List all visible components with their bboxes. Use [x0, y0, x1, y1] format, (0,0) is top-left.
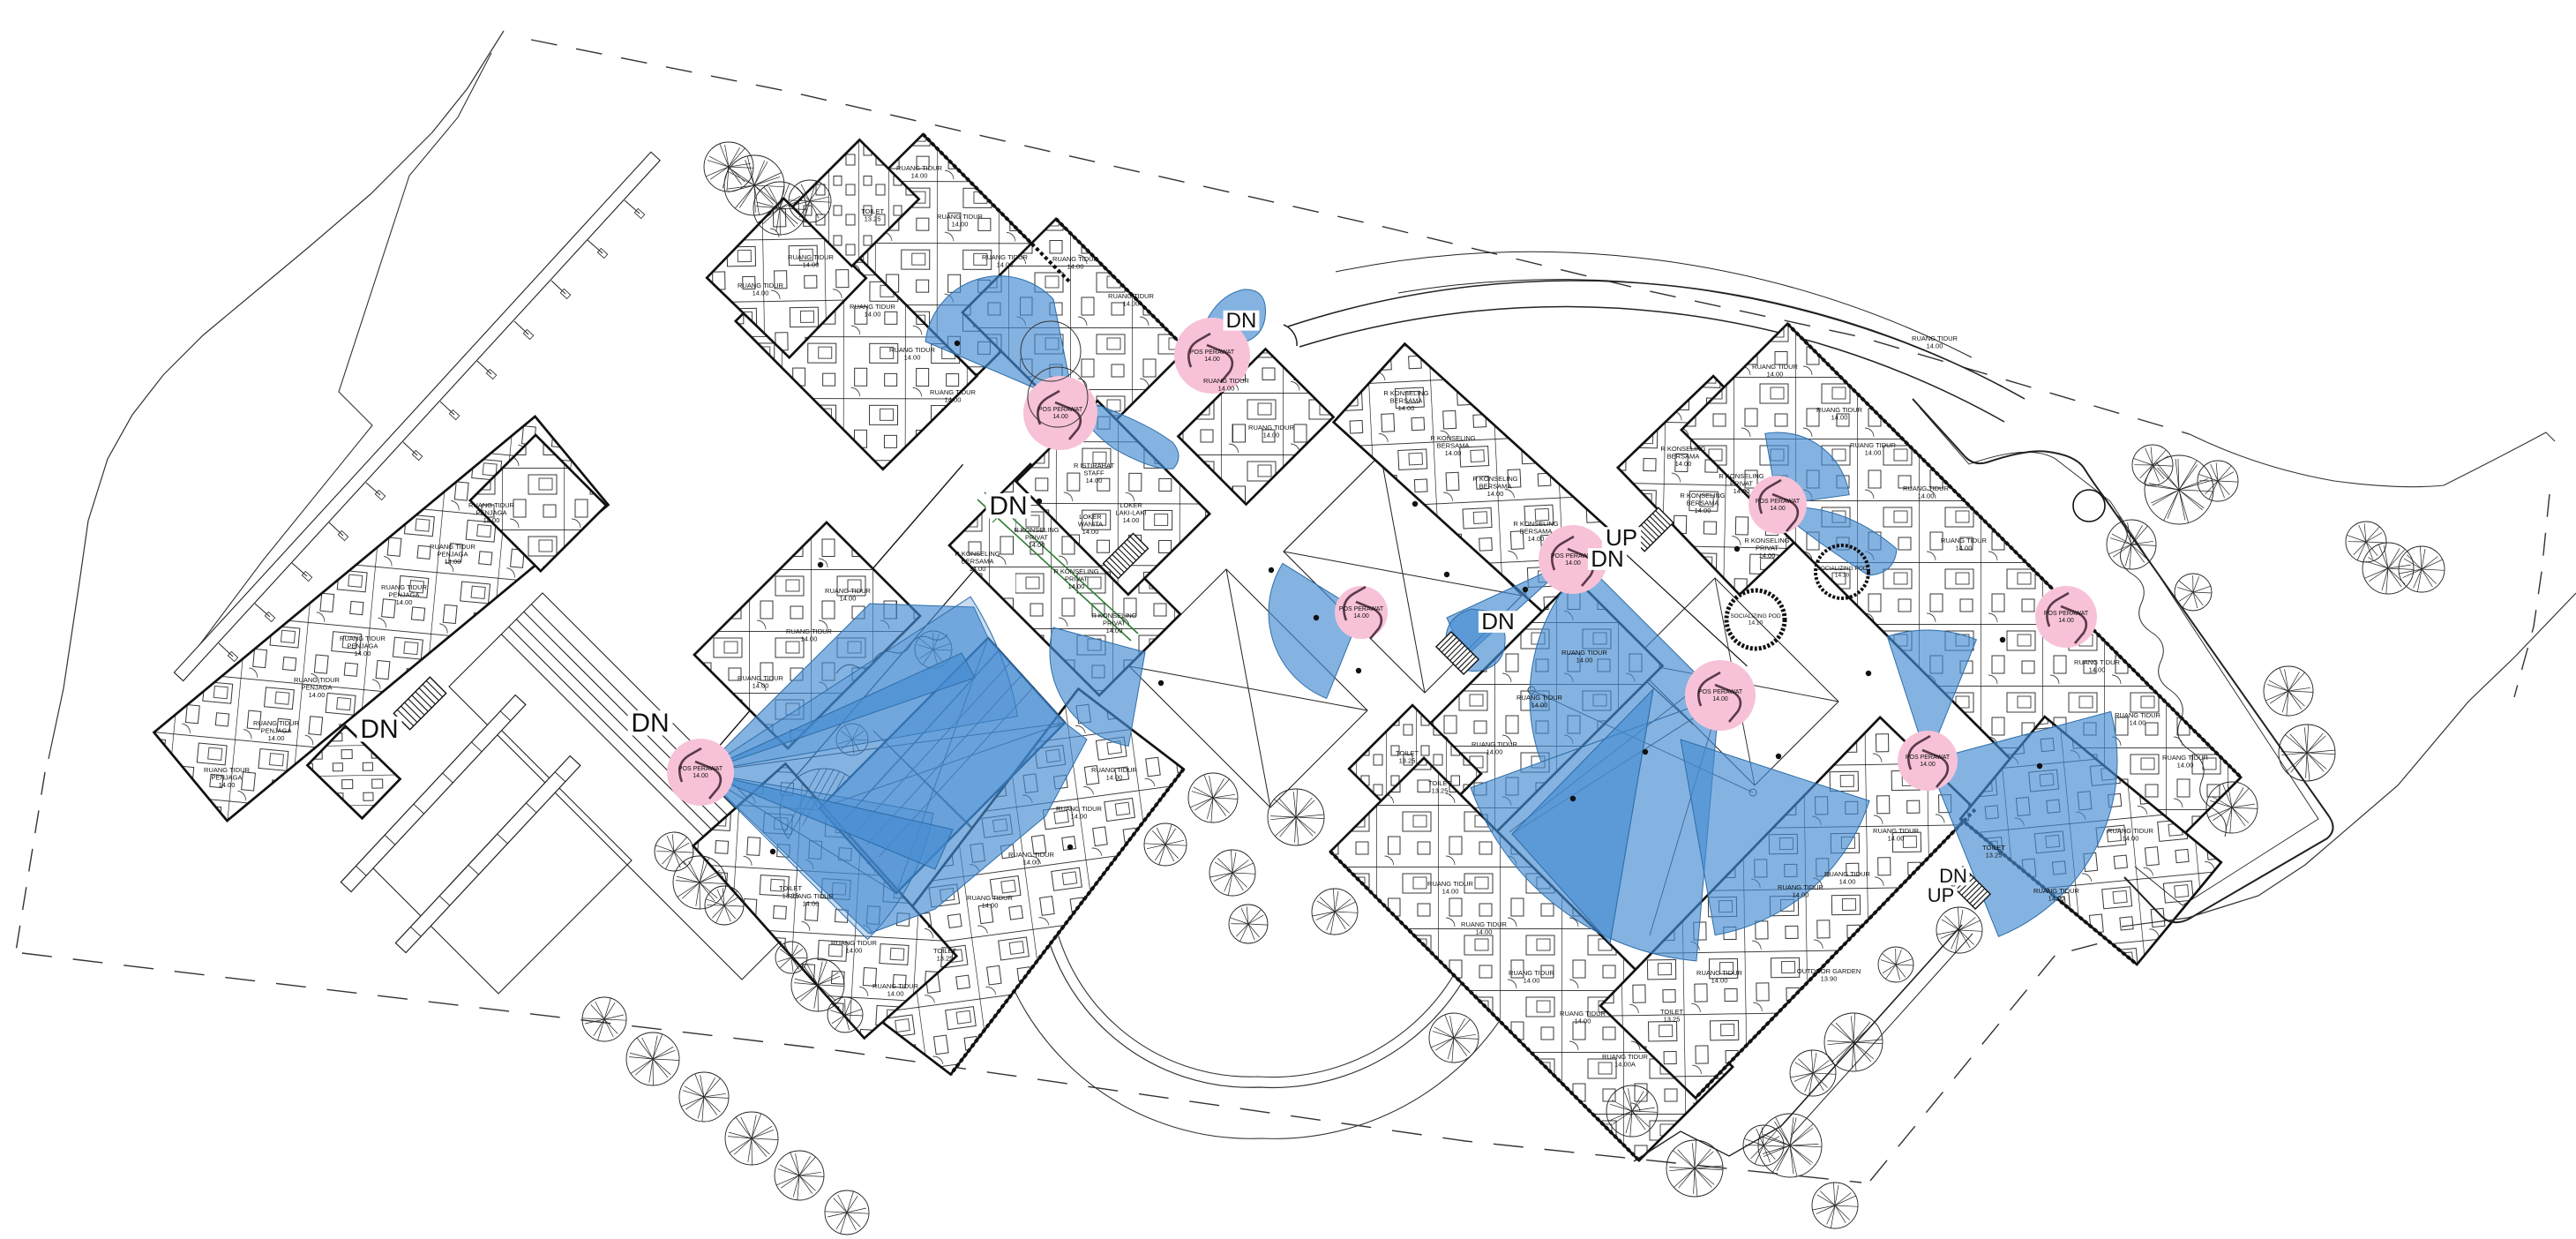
svg-text:POS PERAWAT: POS PERAWAT — [678, 766, 723, 772]
svg-text:14.00: 14.00 — [803, 900, 820, 908]
svg-text:DN: DN — [1481, 608, 1515, 635]
svg-text:14.00: 14.00 — [483, 516, 500, 524]
svg-text:14.00: 14.00 — [693, 773, 708, 779]
svg-text:14.00: 14.00 — [219, 781, 236, 789]
svg-text:14.00: 14.00 — [1888, 835, 1905, 843]
svg-text:14.00: 14.00 — [1956, 544, 1973, 552]
svg-text:POS PERAWAT: POS PERAWAT — [1190, 349, 1235, 356]
svg-text:UP: UP — [1928, 884, 1955, 906]
svg-text:14.00: 14.00 — [904, 354, 921, 362]
svg-text:DN: DN — [989, 492, 1027, 521]
svg-text:SOCIALIZING POD: SOCIALIZING POD — [1730, 613, 1780, 619]
svg-text:POS PERAWAT: POS PERAWAT — [1339, 606, 1384, 612]
svg-text:14.00: 14.00 — [1445, 449, 1462, 457]
svg-text:14.00: 14.00 — [2058, 618, 2074, 624]
svg-text:14.00: 14.00 — [1565, 560, 1581, 567]
svg-text:14.00: 14.00 — [1082, 528, 1099, 536]
svg-text:14.00: 14.00 — [1920, 762, 1936, 768]
svg-text:14.00: 14.00 — [1675, 460, 1692, 468]
svg-text:14.00: 14.00 — [970, 565, 986, 573]
svg-text:POS PERAWAT: POS PERAWAT — [1906, 755, 1951, 761]
svg-text:14.00: 14.00 — [1865, 449, 1882, 457]
svg-text:13.25: 13.25 — [1986, 852, 2003, 860]
svg-text:14.00: 14.00 — [911, 172, 928, 180]
svg-text:14.00: 14.00 — [1476, 928, 1493, 936]
svg-text:14.00: 14.00 — [1204, 357, 1220, 363]
svg-text:14.00: 14.00 — [1442, 888, 1459, 896]
svg-text:14.00: 14.00 — [1734, 487, 1750, 495]
svg-text:14.00: 14.00 — [887, 990, 904, 998]
svg-text:14.00: 14.00 — [1068, 582, 1085, 590]
svg-text:14.00: 14.00 — [1218, 385, 1235, 393]
svg-text:14.00: 14.00 — [1712, 696, 1728, 702]
svg-text:14.00: 14.00 — [1770, 506, 1786, 512]
svg-text:13.25: 13.25 — [783, 892, 799, 900]
svg-text:14.00: 14.00 — [1106, 627, 1123, 635]
svg-text:14.00A: 14.00A — [1614, 1061, 1636, 1069]
svg-text:DN: DN — [631, 709, 669, 738]
svg-text:14.00: 14.00 — [1793, 891, 1809, 899]
svg-text:14.00: 14.00 — [753, 682, 769, 690]
svg-text:14.00: 14.00 — [1263, 432, 1280, 439]
svg-text:14.00: 14.00 — [1123, 516, 1140, 524]
svg-text:13.25: 13.25 — [1432, 787, 1449, 795]
svg-text:14.00: 14.00 — [1695, 507, 1711, 514]
svg-text:POS PERAWAT: POS PERAWAT — [2044, 611, 2089, 617]
svg-text:14.00: 14.00 — [2048, 895, 2065, 903]
svg-text:13.25: 13.25 — [1664, 1016, 1681, 1024]
svg-text:13.25: 13.25 — [937, 955, 954, 963]
svg-text:14.00: 14.00 — [1353, 613, 1369, 619]
svg-text:14.10: 14.10 — [1749, 620, 1764, 627]
svg-text:14.00: 14.00 — [1071, 813, 1088, 821]
svg-text:14.00: 14.00 — [997, 261, 1014, 269]
svg-text:SOCIALIZING POD: SOCIALIZING POD — [1816, 566, 1867, 572]
svg-text:DN: DN — [1591, 545, 1624, 572]
svg-text:14.00: 14.00 — [1831, 414, 1848, 422]
svg-text:14.00: 14.00 — [1123, 300, 1140, 308]
svg-text:14.00: 14.00 — [1711, 977, 1728, 985]
svg-text:13.90: 13.90 — [1821, 975, 1838, 983]
svg-text:14.00: 14.00 — [1052, 414, 1068, 420]
svg-text:14.00: 14.00 — [1487, 490, 1504, 498]
svg-text:14.00: 14.00 — [1759, 552, 1776, 559]
svg-text:14.00: 14.00 — [1106, 774, 1123, 782]
svg-text:14.00: 14.00 — [865, 311, 881, 319]
svg-text:14.00: 14.00 — [396, 598, 413, 606]
svg-text:14.00: 14.00 — [840, 595, 857, 603]
svg-text:DN: DN — [1226, 309, 1257, 333]
svg-text:14.00: 14.00 — [846, 947, 863, 955]
svg-text:14.00: 14.00 — [1029, 541, 1045, 549]
svg-text:14.00: 14.00 — [1067, 263, 1084, 271]
svg-text:14.00: 14.00 — [2177, 762, 2194, 770]
svg-text:13.25: 13.25 — [865, 215, 881, 223]
svg-text:POS PERAWAT: POS PERAWAT — [1038, 407, 1083, 413]
svg-text:DN: DN — [360, 715, 398, 744]
svg-text:14.00: 14.00 — [1918, 492, 1935, 500]
svg-text:14.00: 14.00 — [1486, 748, 1503, 756]
svg-text:14.00: 14.00 — [1927, 342, 1943, 350]
svg-text:14.00: 14.00 — [753, 289, 769, 297]
svg-text:POS PERAWAT: POS PERAWAT — [1698, 689, 1743, 695]
svg-text:14.00: 14.00 — [309, 691, 326, 699]
svg-text:14.00: 14.00 — [268, 734, 285, 742]
svg-text:14.00: 14.00 — [803, 261, 820, 269]
svg-text:14.00: 14.00 — [2089, 666, 2106, 674]
svg-text:14.00: 14.00 — [1524, 977, 1540, 985]
svg-text:14.00: 14.00 — [2130, 719, 2146, 727]
svg-text:14.00: 14.00 — [801, 635, 818, 643]
svg-text:14.00: 14.00 — [1531, 702, 1548, 710]
svg-text:14.00: 14.00 — [2123, 835, 2139, 843]
svg-text:14.00: 14.00 — [1575, 1017, 1591, 1025]
svg-text:13.25: 13.25 — [1399, 757, 1416, 765]
svg-text:14.00: 14.00 — [1576, 657, 1593, 665]
svg-text:POS PERAWAT: POS PERAWAT — [1756, 499, 1801, 505]
svg-text:14.10: 14.10 — [1835, 573, 1850, 579]
svg-text:14.00: 14.00 — [1023, 859, 1040, 867]
svg-text:14.00: 14.00 — [952, 221, 969, 229]
svg-text:14.00: 14.00 — [982, 902, 999, 910]
svg-text:14.00: 14.00 — [445, 558, 461, 566]
svg-text:14.00: 14.00 — [1528, 535, 1545, 543]
svg-text:14.00: 14.00 — [355, 650, 371, 657]
svg-text:14.00: 14.00 — [1398, 404, 1415, 412]
svg-text:14.00: 14.00 — [945, 396, 962, 404]
svg-text:14.00: 14.00 — [1086, 477, 1103, 484]
svg-text:14.00: 14.00 — [1767, 371, 1784, 379]
svg-text:14.00: 14.00 — [1839, 878, 1856, 886]
